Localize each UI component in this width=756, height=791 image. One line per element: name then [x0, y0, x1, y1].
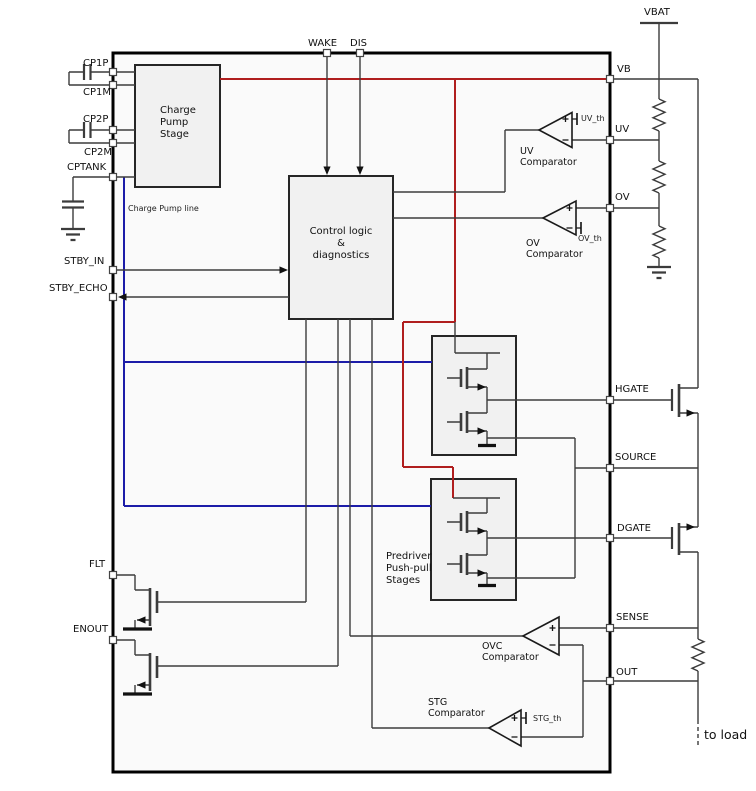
pin-cp1p — [110, 69, 117, 76]
ov-comparator-label: OV Comparator — [526, 238, 583, 260]
vbat-label: VBAT — [644, 7, 670, 19]
pin-label-cptank: CPTANK — [67, 162, 106, 174]
sense-resistor — [692, 639, 704, 671]
pin-vb — [607, 76, 614, 83]
control-logic-block-label: Control logic & diagnostics — [289, 226, 393, 262]
resistor — [653, 99, 665, 131]
ovc-comparator-label: OVC Comparator — [482, 641, 539, 663]
pin-cp2m — [110, 140, 117, 147]
pin-wake — [324, 50, 331, 57]
pin-label-flt: FLT — [89, 559, 105, 571]
pin-hgate — [607, 397, 614, 404]
pin-label-cp2p: CP2P — [83, 114, 108, 126]
resistor — [653, 161, 665, 193]
pin-label-hgate: HGATE — [615, 384, 649, 396]
uv-comparator-label: UV Comparator — [520, 146, 577, 168]
pin-label-stby-in: STBY_IN — [64, 256, 104, 268]
mosfet-arrow — [687, 409, 696, 416]
pin-label-source: SOURCE — [615, 452, 656, 464]
pin-stby-in — [110, 267, 117, 274]
pin-uv — [607, 137, 614, 144]
pin-label-cp2m: CP2M — [84, 147, 112, 159]
pin-cp2p — [110, 127, 117, 134]
to-load-label: to load — [704, 729, 747, 741]
schematic-diagram: VBAT WAKE DIS CP1P CP1M CP2P CP2M CPTANK… — [0, 0, 756, 791]
pin-sense — [607, 625, 614, 632]
ground-symbol — [647, 267, 671, 278]
pin-flt — [110, 572, 117, 579]
capacitor-plates — [62, 202, 84, 208]
pin-label-ov: OV — [615, 192, 630, 204]
predriver-dgate-block — [431, 479, 516, 600]
pin-label-dgate: DGATE — [617, 523, 651, 535]
pin-label-stby-echo: STBY_ECHO — [49, 283, 108, 295]
charge-pump-block-label: Charge Pump Stage — [160, 105, 196, 141]
pin-label-uv: UV — [615, 124, 629, 136]
ov-threshold-label: OV_th — [578, 233, 602, 245]
ground-symbol — [61, 229, 85, 240]
pin-label-sense: SENSE — [616, 612, 649, 624]
resistor — [653, 226, 665, 258]
pin-enout — [110, 637, 117, 644]
pin-dgate — [607, 535, 614, 542]
pin-out — [607, 678, 614, 685]
pin-label-dis: DIS — [350, 38, 367, 50]
predriver-hgate-block — [432, 336, 516, 455]
capacitor-plates — [84, 64, 91, 138]
pin-label-cp1m: CP1M — [83, 87, 111, 99]
pin-label-enout: ENOUT — [73, 624, 108, 636]
charge-pump-line-label: Charge Pump line — [128, 203, 199, 215]
pin-stby-echo — [110, 294, 117, 301]
mosfet-arrow — [687, 523, 696, 530]
stg-threshold-label: STG_th — [533, 713, 561, 725]
pin-cptank — [110, 174, 117, 181]
pin-label-wake: WAKE — [308, 38, 337, 50]
uv-threshold-label: UV_th — [581, 113, 605, 125]
pin-label-out: OUT — [616, 667, 637, 679]
pin-dis — [357, 50, 364, 57]
pin-label-cp1p: CP1P — [83, 58, 108, 70]
pin-source — [607, 465, 614, 472]
pin-ov — [607, 205, 614, 212]
cptank-capacitor — [73, 177, 110, 229]
stg-comparator-label: STG Comparator — [428, 697, 485, 719]
predriver-block-label: Predriver Push-pull Stages — [386, 551, 432, 587]
pin-label-vb: VB — [617, 64, 631, 76]
